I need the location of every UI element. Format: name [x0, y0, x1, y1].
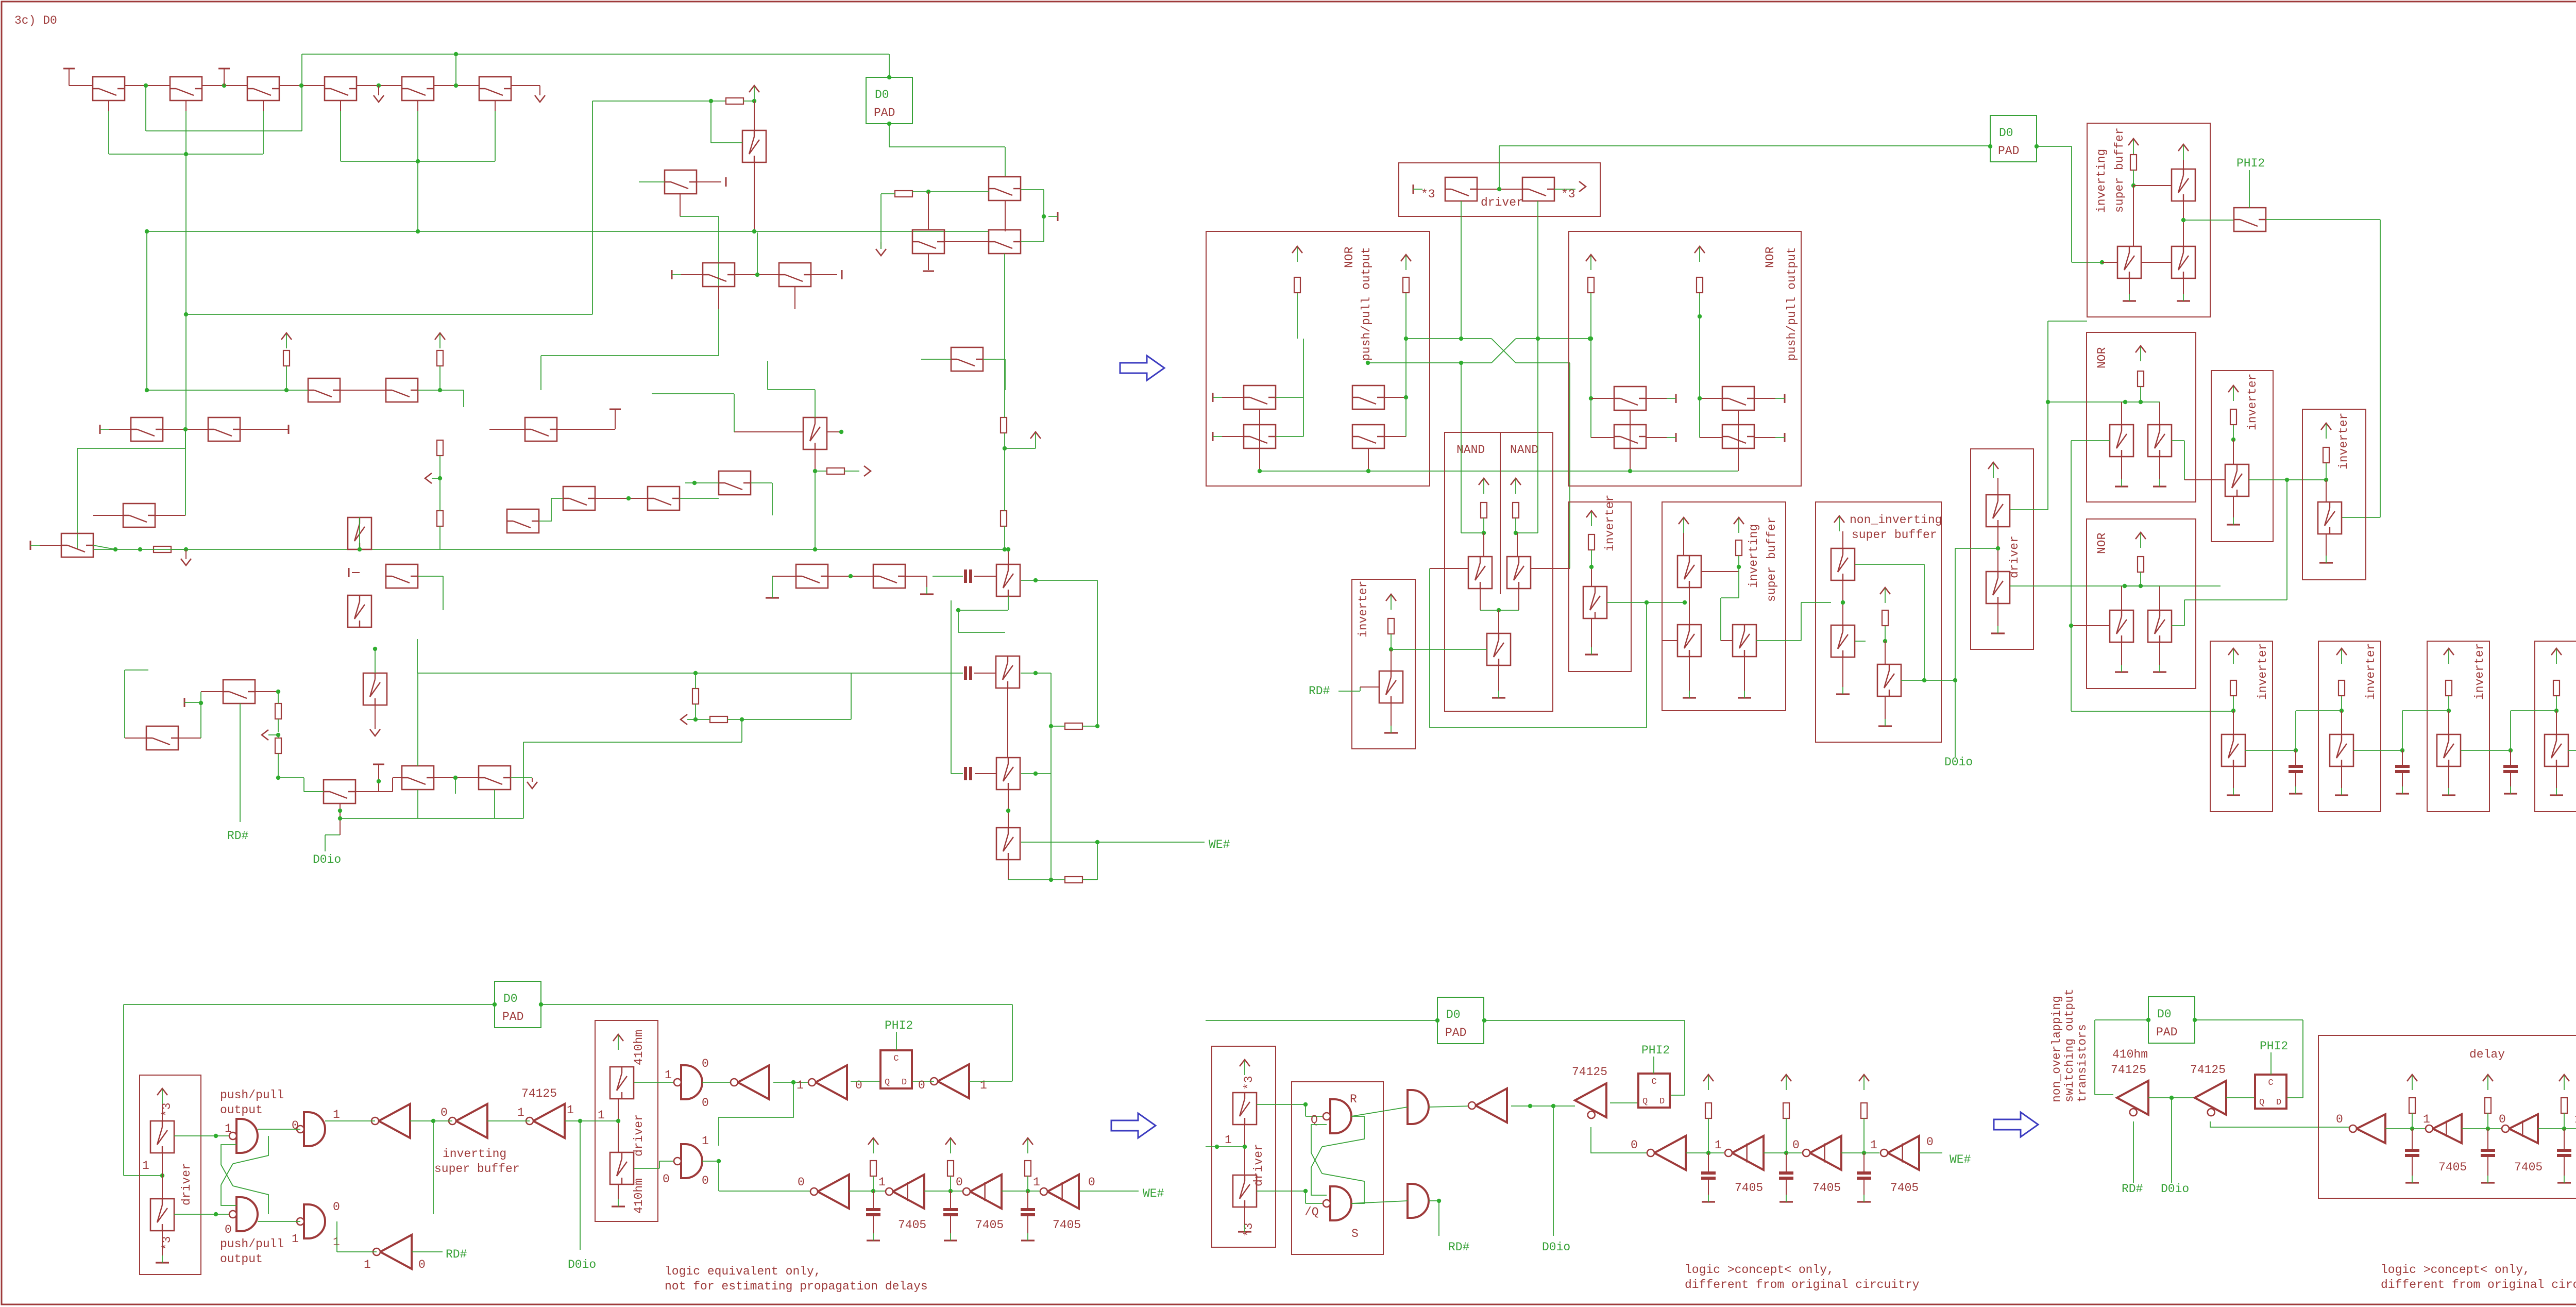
- svg-text:PAD: PAD: [874, 106, 895, 120]
- svg-text:non_overlapping: non_overlapping: [2050, 996, 2063, 1102]
- svg-text:RD#: RD#: [1309, 684, 1330, 698]
- svg-text:0: 0: [292, 1119, 299, 1132]
- svg-text:D0: D0: [1999, 126, 2013, 140]
- svg-text:3c) D0: 3c) D0: [14, 14, 57, 27]
- svg-text:inverting: inverting: [2095, 149, 2108, 213]
- svg-text:inverter: inverter: [1603, 495, 1617, 551]
- svg-text:1: 1: [1225, 1133, 1232, 1147]
- svg-text:0: 0: [702, 1174, 709, 1187]
- svg-text:C: C: [1651, 1077, 1656, 1087]
- svg-text:inverter: inverter: [2256, 643, 2269, 700]
- svg-text:*3: *3: [1421, 188, 1435, 201]
- svg-text:/Q: /Q: [1304, 1205, 1319, 1219]
- svg-text:Q: Q: [2259, 1098, 2264, 1108]
- svg-text:*3: *3: [1561, 188, 1575, 201]
- svg-text:NOR: NOR: [1343, 246, 1356, 268]
- svg-text:non_inverting: non_inverting: [1850, 513, 1942, 527]
- svg-text:74125: 74125: [2190, 1063, 2226, 1077]
- svg-text:delay: delay: [2469, 1048, 2505, 1061]
- svg-text:74125: 74125: [1572, 1065, 1607, 1079]
- svg-text:1: 1: [292, 1232, 299, 1246]
- svg-text:NAND: NAND: [1510, 443, 1538, 457]
- svg-text:driver: driver: [632, 1114, 646, 1157]
- svg-text:inverting: inverting: [443, 1147, 506, 1161]
- svg-text:1: 1: [225, 1122, 232, 1135]
- svg-text:RD#: RD#: [227, 829, 249, 843]
- svg-text:0: 0: [702, 1096, 709, 1110]
- svg-text:D: D: [1659, 1097, 1665, 1107]
- svg-text:NOR: NOR: [2095, 347, 2109, 368]
- svg-text:logic equivalent only,: logic equivalent only,: [665, 1265, 821, 1278]
- svg-text:0: 0: [2336, 1113, 2343, 1126]
- svg-text:*3: *3: [1242, 1076, 1256, 1090]
- svg-text:WE#: WE#: [1950, 1153, 1971, 1166]
- svg-text:inverter: inverter: [2337, 413, 2350, 470]
- svg-text:RD#: RD#: [1448, 1241, 1470, 1254]
- svg-text:D0: D0: [875, 88, 889, 102]
- svg-text:7405: 7405: [1812, 1181, 1841, 1195]
- svg-text:0: 0: [1088, 1176, 1095, 1189]
- svg-text:410hm: 410hm: [2112, 1048, 2148, 1061]
- svg-text:different from original circui: different from original circuitry: [1685, 1278, 1920, 1292]
- svg-text:1: 1: [567, 1103, 574, 1117]
- svg-text:logic >concept< only,: logic >concept< only,: [1685, 1263, 1834, 1277]
- svg-text:7405: 7405: [898, 1218, 926, 1232]
- svg-text:1: 1: [980, 1079, 987, 1092]
- svg-text:1: 1: [2423, 1113, 2430, 1126]
- svg-text:410hm: 410hm: [632, 1030, 646, 1065]
- svg-text:super buffer: super buffer: [1852, 528, 1937, 542]
- svg-text:PAD: PAD: [1445, 1026, 1466, 1040]
- svg-text:Q: Q: [885, 1078, 890, 1087]
- svg-text:NOR: NOR: [1764, 246, 1777, 268]
- svg-text:Q: Q: [1642, 1097, 1648, 1107]
- svg-text:different from original circui: different from original circuitry: [2381, 1278, 2576, 1292]
- svg-text:0: 0: [418, 1258, 426, 1271]
- svg-text:0: 0: [798, 1176, 805, 1189]
- svg-text:inverter: inverter: [2473, 643, 2486, 700]
- svg-text:push/pull: push/pull: [220, 1237, 284, 1251]
- svg-text:output: output: [220, 1252, 263, 1266]
- svg-text:410hm: 410hm: [632, 1178, 646, 1214]
- svg-text:C: C: [2268, 1078, 2273, 1088]
- svg-text:D0io: D0io: [313, 853, 341, 866]
- svg-text:transistors: transistors: [2076, 1024, 2089, 1102]
- svg-text:0: 0: [956, 1176, 963, 1189]
- svg-text:0: 0: [855, 1079, 862, 1092]
- svg-text:1: 1: [702, 1134, 709, 1148]
- svg-text:7405: 7405: [1053, 1218, 1081, 1232]
- svg-text:PAD: PAD: [1998, 144, 2019, 158]
- svg-text:0: 0: [702, 1057, 709, 1070]
- svg-text:1: 1: [333, 1108, 340, 1121]
- svg-text:PHI2: PHI2: [2260, 1040, 2288, 1053]
- svg-text:inverting: inverting: [1747, 524, 1760, 588]
- svg-text:push/pull output: push/pull output: [1785, 247, 1799, 361]
- svg-text:0: 0: [333, 1200, 340, 1214]
- svg-text:switching output: switching output: [2063, 988, 2076, 1102]
- svg-text:1: 1: [598, 1109, 605, 1122]
- svg-text:inverter: inverter: [1357, 581, 1370, 638]
- svg-text:push/pull output: push/pull output: [1360, 247, 1373, 361]
- svg-text:1: 1: [665, 1068, 672, 1082]
- svg-text:WE#: WE#: [1143, 1187, 1164, 1200]
- svg-text:PAD: PAD: [502, 1010, 523, 1024]
- svg-text:super buffer: super buffer: [434, 1162, 520, 1176]
- svg-text:WE#: WE#: [1209, 838, 1230, 851]
- svg-text:logic >concept< only,: logic >concept< only,: [2381, 1263, 2530, 1277]
- svg-text:7405: 7405: [1890, 1181, 1919, 1195]
- svg-text:74125: 74125: [521, 1087, 557, 1100]
- svg-text:S: S: [1351, 1227, 1359, 1241]
- svg-text:7405: 7405: [975, 1218, 1004, 1232]
- svg-text:PHI2: PHI2: [885, 1019, 913, 1032]
- svg-text:D0io: D0io: [2161, 1182, 2189, 1196]
- svg-text:RD#: RD#: [2122, 1182, 2143, 1196]
- svg-text:7405: 7405: [1735, 1181, 1763, 1195]
- svg-text:1: 1: [1715, 1138, 1722, 1152]
- svg-text:1: 1: [142, 1159, 149, 1172]
- svg-text:RD#: RD#: [446, 1248, 467, 1261]
- svg-text:0: 0: [1631, 1138, 1638, 1152]
- svg-text:R: R: [1350, 1093, 1357, 1106]
- svg-text:driver: driver: [1252, 1144, 1265, 1186]
- svg-text:D: D: [902, 1078, 907, 1087]
- svg-text:inverter: inverter: [2246, 374, 2259, 430]
- svg-text:D0io: D0io: [1944, 756, 1973, 769]
- svg-text:NOR: NOR: [2095, 532, 2109, 554]
- svg-text:D0: D0: [2157, 1008, 2172, 1021]
- svg-text:0: 0: [1926, 1135, 1934, 1149]
- svg-text:0: 0: [1792, 1138, 1800, 1152]
- svg-text:D0: D0: [1446, 1008, 1461, 1021]
- svg-text:PAD: PAD: [2156, 1026, 2177, 1039]
- svg-text:0: 0: [2499, 1113, 2506, 1126]
- svg-text:0: 0: [225, 1223, 232, 1236]
- svg-text:1: 1: [517, 1106, 524, 1119]
- svg-text:0: 0: [663, 1172, 670, 1186]
- svg-text:0: 0: [918, 1079, 925, 1092]
- svg-text:74125: 74125: [2111, 1063, 2146, 1077]
- svg-text:D0io: D0io: [1542, 1241, 1570, 1254]
- svg-text:*3: *3: [1242, 1222, 1256, 1237]
- svg-text:1: 1: [796, 1079, 804, 1092]
- svg-text:0: 0: [440, 1106, 448, 1119]
- svg-text:7405: 7405: [2438, 1161, 2467, 1174]
- svg-text:PHI2: PHI2: [2236, 157, 2265, 170]
- svg-text:push/pull: push/pull: [220, 1088, 284, 1102]
- svg-text:super buffer: super buffer: [2113, 127, 2126, 213]
- svg-text:1: 1: [878, 1176, 886, 1189]
- svg-text:super buffer: super buffer: [1765, 516, 1778, 602]
- svg-text:1: 1: [1033, 1176, 1040, 1189]
- svg-text:1: 1: [364, 1258, 371, 1271]
- svg-text:D0io: D0io: [568, 1258, 596, 1271]
- svg-text:7405: 7405: [2514, 1161, 2543, 1174]
- svg-text:output: output: [220, 1103, 263, 1117]
- svg-text:driver: driver: [1481, 196, 1523, 209]
- svg-text:D: D: [2276, 1098, 2281, 1108]
- svg-text:C: C: [893, 1054, 899, 1064]
- svg-text:inverter: inverter: [2364, 643, 2378, 700]
- svg-text:D0: D0: [503, 992, 518, 1006]
- svg-text:1: 1: [333, 1235, 340, 1249]
- svg-text:not for estimating propagation: not for estimating propagation delays: [665, 1280, 928, 1293]
- svg-text:driver: driver: [180, 1163, 193, 1205]
- svg-text:PHI2: PHI2: [1641, 1044, 1670, 1057]
- svg-text:1: 1: [1870, 1138, 1877, 1152]
